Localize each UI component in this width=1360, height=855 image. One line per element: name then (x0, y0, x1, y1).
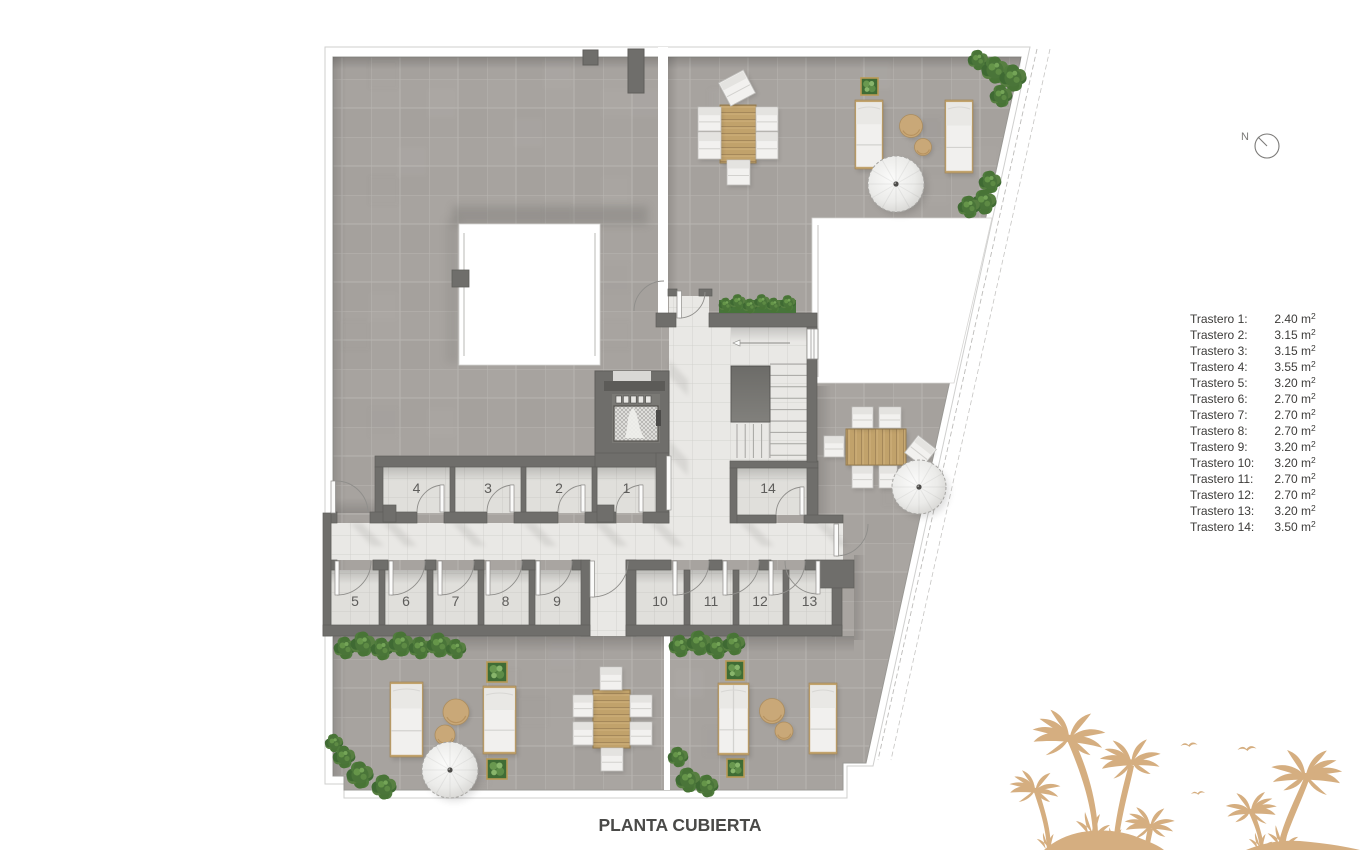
svg-text:Trastero 2:: Trastero 2: (1190, 328, 1248, 342)
svg-text:1: 1 (623, 480, 631, 496)
svg-text:2.40 m: 2.40 m (1274, 312, 1311, 326)
svg-text:N: N (1241, 131, 1249, 143)
svg-text:2.70 m: 2.70 m (1274, 392, 1311, 406)
svg-text:3.20 m: 3.20 m (1274, 376, 1311, 390)
svg-text:2: 2 (1311, 343, 1316, 353)
svg-text:Trastero 4:: Trastero 4: (1190, 360, 1248, 374)
svg-text:2.70 m: 2.70 m (1274, 488, 1311, 502)
svg-text:2: 2 (1311, 359, 1316, 369)
svg-text:2.70 m: 2.70 m (1274, 408, 1311, 422)
svg-text:Trastero 1:: Trastero 1: (1190, 312, 1248, 326)
svg-text:3: 3 (484, 480, 492, 496)
svg-text:2: 2 (1311, 503, 1316, 513)
svg-text:2: 2 (1311, 407, 1316, 417)
svg-text:2.70 m: 2.70 m (1274, 424, 1311, 438)
svg-text:Trastero 7:: Trastero 7: (1190, 408, 1248, 422)
svg-text:Trastero 3:: Trastero 3: (1190, 344, 1248, 358)
svg-text:2: 2 (1311, 311, 1316, 321)
svg-text:2: 2 (1311, 375, 1316, 385)
svg-text:3.20 m: 3.20 m (1274, 504, 1311, 518)
svg-text:PLANTA CUBIERTA: PLANTA CUBIERTA (599, 815, 762, 835)
svg-text:2: 2 (1311, 423, 1316, 433)
svg-text:Trastero 10:: Trastero 10: (1190, 456, 1254, 470)
svg-text:13: 13 (802, 593, 818, 609)
svg-text:Trastero 5:: Trastero 5: (1190, 376, 1248, 390)
svg-text:2: 2 (1311, 487, 1316, 497)
svg-text:2: 2 (1311, 471, 1316, 481)
svg-text:3.55 m: 3.55 m (1274, 360, 1311, 374)
svg-text:2: 2 (1311, 439, 1316, 449)
svg-text:3.20 m: 3.20 m (1274, 440, 1311, 454)
svg-text:3.15 m: 3.15 m (1274, 328, 1311, 342)
svg-text:10: 10 (652, 593, 668, 609)
svg-text:Trastero 12:: Trastero 12: (1190, 488, 1254, 502)
svg-text:7: 7 (452, 593, 460, 609)
svg-text:2.70 m: 2.70 m (1274, 472, 1311, 486)
svg-text:3.50 m: 3.50 m (1274, 520, 1311, 534)
svg-text:2: 2 (1311, 455, 1316, 465)
svg-text:3.20 m: 3.20 m (1274, 456, 1311, 470)
svg-text:8: 8 (502, 593, 510, 609)
svg-text:5: 5 (351, 593, 359, 609)
svg-text:12: 12 (752, 593, 768, 609)
svg-text:Trastero 8:: Trastero 8: (1190, 424, 1248, 438)
svg-text:4: 4 (413, 480, 421, 496)
svg-text:2: 2 (555, 480, 563, 496)
svg-text:14: 14 (760, 480, 776, 496)
svg-text:Trastero 6:: Trastero 6: (1190, 392, 1248, 406)
svg-text:Trastero 13:: Trastero 13: (1190, 504, 1254, 518)
svg-text:9: 9 (553, 593, 561, 609)
svg-text:3.15 m: 3.15 m (1274, 344, 1311, 358)
svg-text:6: 6 (402, 593, 410, 609)
svg-text:2: 2 (1311, 519, 1316, 529)
svg-text:2: 2 (1311, 327, 1316, 337)
svg-text:Trastero 9:: Trastero 9: (1190, 440, 1248, 454)
svg-text:Trastero 14:: Trastero 14: (1190, 520, 1254, 534)
svg-text:Trastero 11:: Trastero 11: (1190, 472, 1253, 486)
svg-text:2: 2 (1311, 391, 1316, 401)
svg-text:11: 11 (704, 593, 719, 609)
